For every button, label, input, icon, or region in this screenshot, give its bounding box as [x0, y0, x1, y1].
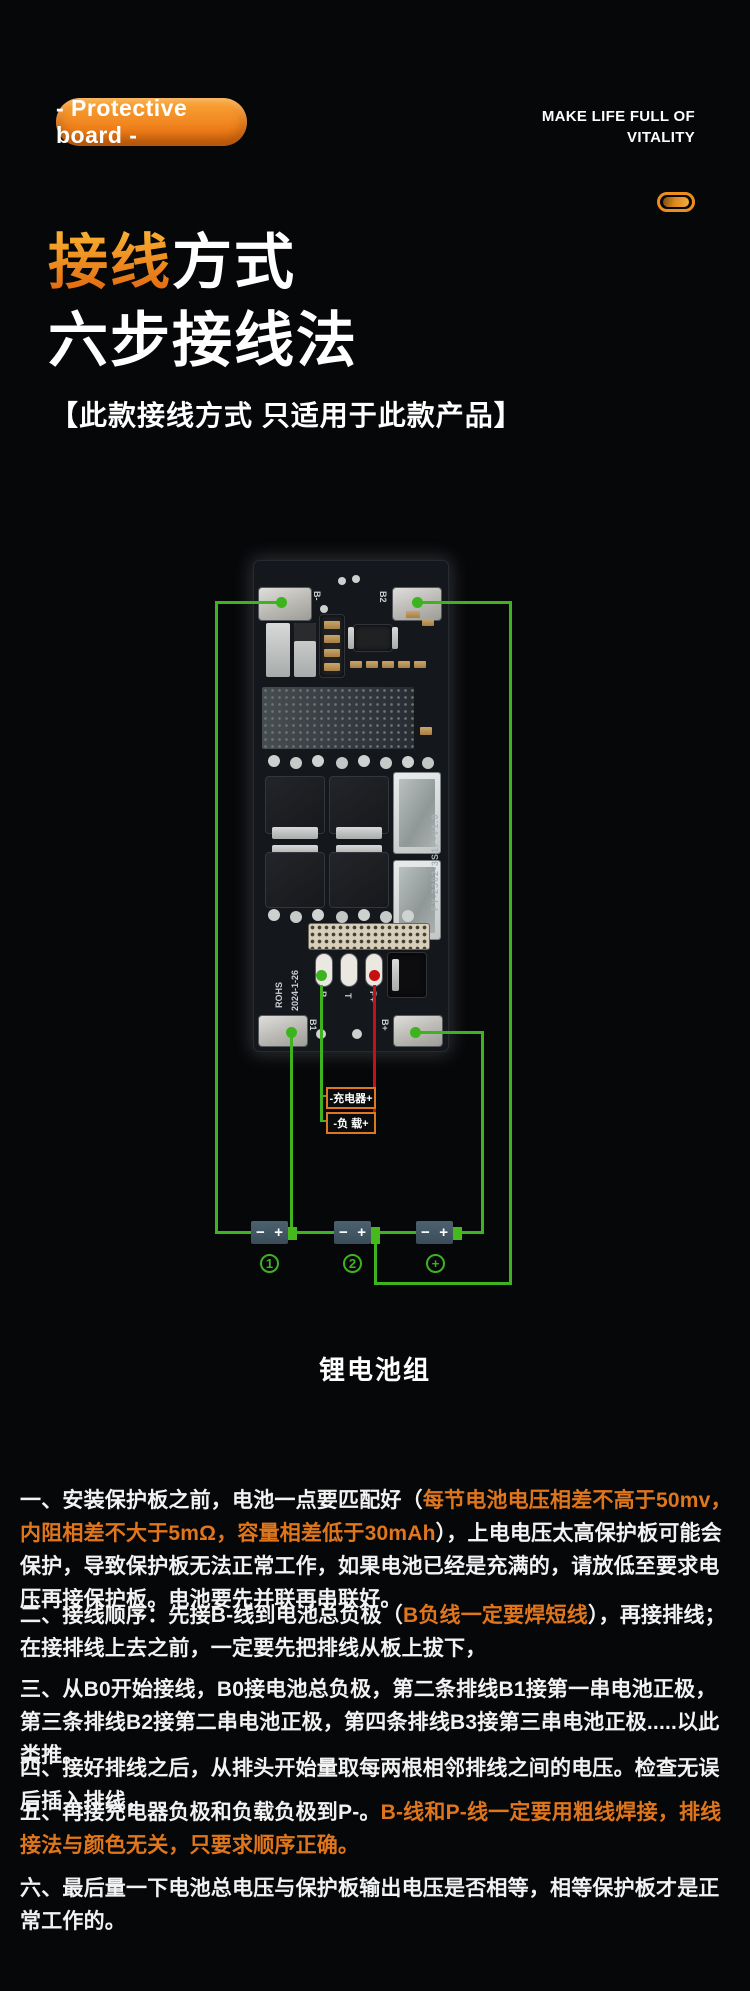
- wire-cell2-down: [374, 1242, 377, 1285]
- dot-p-minus: [316, 970, 327, 981]
- load-label: -负 载+: [326, 1112, 376, 1134]
- pad-t-oval: [341, 954, 357, 986]
- solder-joints-row: [268, 755, 280, 767]
- cell-number-2: 2: [343, 1254, 362, 1273]
- smd-resistor: [382, 661, 394, 668]
- battery-cell-3: − +: [416, 1221, 453, 1244]
- silk-model: FY-2302-3S1P-V1.0: [430, 813, 440, 911]
- page-title-line1: 接线方式: [48, 214, 296, 301]
- title-rest: 方式: [172, 229, 296, 296]
- silk-rohs: ROHS: [274, 982, 284, 1008]
- battery-icon: [657, 192, 695, 212]
- ic-pins: [392, 627, 398, 649]
- via-dot: [352, 1029, 362, 1039]
- mosfet: [266, 777, 324, 833]
- cell1-tab: [288, 1227, 297, 1240]
- wire-bminus-vertical: [215, 601, 218, 1234]
- wire-cell1-cell2: [294, 1231, 336, 1234]
- smd-resistor: [366, 661, 378, 668]
- via-dot: [338, 577, 346, 585]
- cell3-tab: [453, 1227, 462, 1240]
- protective-board-badge: - Protective board -: [56, 98, 247, 146]
- instruction-step-1: 一、安装保护板之前，电池一点要匹配好（每节电池电压相差不高于50mv，内阻相差不…: [20, 1484, 736, 1616]
- mosfet: [330, 853, 388, 907]
- instruction-step-5: 五、再接充电器负极和负载负极到P-。B-线和P-线一定要用粗线焊接，排线接法与颜…: [20, 1796, 736, 1862]
- battery-cell-2: − +: [334, 1221, 371, 1244]
- pad-b2-label: B2: [378, 591, 388, 603]
- ic-sop8: [354, 625, 392, 651]
- solder-joints-row: [268, 909, 280, 921]
- title-highlight: 接线: [48, 229, 172, 296]
- wire-b2-top: [417, 601, 512, 604]
- balance-connector: [309, 924, 429, 949]
- cell2-tab: [371, 1227, 380, 1244]
- dot-p-plus: [369, 970, 380, 981]
- mosfet-tab: [272, 827, 318, 839]
- smd-resistor: [420, 727, 432, 735]
- cell1-plus: +: [274, 1225, 283, 1240]
- page: - Protective board - MAKE LIFE FULL OF V…: [0, 0, 750, 1991]
- wire-bplus-vertical: [481, 1031, 484, 1233]
- page-subtitle: 【此款接线方式 只适用于此款产品】: [50, 394, 523, 434]
- cell3-minus: −: [421, 1225, 430, 1240]
- smd-resistor: [406, 611, 420, 618]
- slogan-line-2: VITALITY: [542, 127, 695, 148]
- mosfet: [330, 777, 388, 833]
- wire-bminus-to-cell1: [215, 1231, 253, 1234]
- wire-bplus-horizontal: [414, 1031, 484, 1034]
- wire-pminus-vertical: [320, 985, 323, 1122]
- battery-pack-caption: 锂电池组: [0, 1350, 750, 1387]
- charger-label: -充电器+: [326, 1087, 376, 1109]
- diode-band: [392, 959, 399, 991]
- wire-b2-vertical: [509, 601, 512, 1285]
- smd-resistor: [324, 621, 340, 629]
- wire-bminus-top: [215, 601, 281, 604]
- wire-b2-bottom: [374, 1282, 512, 1285]
- cell-number-1: 1: [260, 1254, 279, 1273]
- smd-resistor: [398, 661, 410, 668]
- mosfet-tab: [336, 827, 382, 839]
- cell2-minus: −: [339, 1225, 348, 1240]
- dot-b1: [286, 1027, 297, 1038]
- smd-resistor: [422, 619, 434, 626]
- silk-date: 2024-1-26: [290, 970, 300, 1011]
- slogan: MAKE LIFE FULL OF VITALITY: [542, 106, 695, 148]
- pad-b-plus-label: B+: [380, 1019, 390, 1031]
- cell-number-3: +: [426, 1254, 445, 1273]
- shunt-resistor: [266, 623, 290, 677]
- cell3-plus: +: [439, 1225, 448, 1240]
- wire-b1-vertical: [290, 1033, 293, 1233]
- badge-label: - Protective board -: [56, 95, 247, 149]
- smd-resistor: [324, 663, 340, 671]
- smd-resistor: [414, 661, 426, 668]
- pad-b1-label: B1: [308, 1019, 318, 1031]
- wire-cell2-cell3: [377, 1231, 418, 1234]
- smd-resistor: [324, 635, 340, 643]
- dot-b2: [412, 597, 423, 608]
- instruction-step-6: 六、最后量一下电池总电压与保护板输出电压是否相等，相等保护板才是正常工作的。: [20, 1872, 736, 1938]
- ic-pins: [348, 627, 354, 649]
- pad-t-label: T: [343, 993, 353, 999]
- page-title-line2: 六步接线法: [48, 292, 358, 379]
- battery-cell-1: − +: [251, 1221, 288, 1244]
- pad-b-minus-label: B-: [312, 591, 322, 601]
- via-dot: [352, 575, 360, 583]
- dot-b-minus: [276, 597, 287, 608]
- pcb-board: B- B2: [253, 560, 449, 1052]
- cell2-plus: +: [357, 1225, 366, 1240]
- instruction-step-2: 二、接线顺序：先接B-线到电池总负极（B负线一定要焊短线），再接排线；在接排线上…: [20, 1599, 736, 1665]
- smd-resistor: [350, 661, 362, 668]
- via-dot: [320, 605, 328, 613]
- dot-b-plus: [410, 1027, 421, 1038]
- shunt-resistor: [294, 623, 316, 677]
- copper-fill-area: [262, 687, 414, 749]
- mosfet: [266, 853, 324, 907]
- smd-resistor: [324, 649, 340, 657]
- cell1-minus: −: [256, 1225, 265, 1240]
- slogan-line-1: MAKE LIFE FULL OF: [542, 106, 695, 127]
- pad-b1: [259, 1016, 307, 1046]
